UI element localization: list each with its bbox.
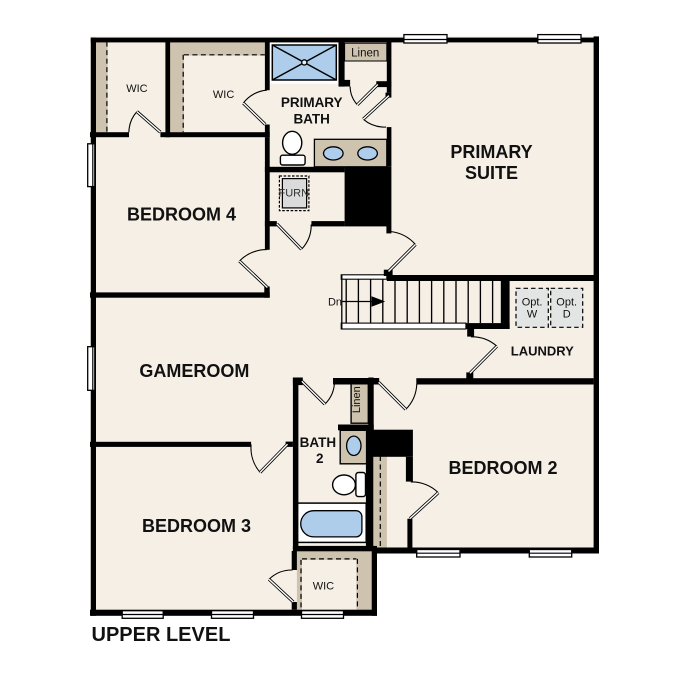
svg-text:Linen: Linen xyxy=(351,386,363,413)
svg-text:WIC: WIC xyxy=(126,83,147,95)
svg-text:LAUNDRY: LAUNDRY xyxy=(511,343,574,358)
svg-text:BEDROOM 2: BEDROOM 2 xyxy=(448,458,557,478)
svg-text:BEDROOM 4: BEDROOM 4 xyxy=(127,204,236,224)
svg-text:WIC: WIC xyxy=(213,89,234,101)
svg-text:Opt.: Opt. xyxy=(556,297,577,309)
svg-text:PRIMARY: PRIMARY xyxy=(281,95,343,110)
svg-text:UPPER LEVEL: UPPER LEVEL xyxy=(92,624,231,646)
svg-text:Opt.: Opt. xyxy=(522,297,543,309)
svg-text:PRIMARY: PRIMARY xyxy=(450,142,532,162)
svg-text:BATH: BATH xyxy=(300,435,337,450)
svg-text:WIC: WIC xyxy=(313,580,334,592)
svg-text:FURN: FURN xyxy=(279,187,310,199)
svg-text:SUITE: SUITE xyxy=(465,163,518,183)
svg-text:BEDROOM 3: BEDROOM 3 xyxy=(142,516,251,536)
svg-text:BATH: BATH xyxy=(293,111,330,126)
svg-text:W: W xyxy=(527,309,538,321)
svg-text:Dn: Dn xyxy=(328,296,342,308)
svg-text:GAMEROOM: GAMEROOM xyxy=(139,361,249,381)
svg-text:Linen: Linen xyxy=(351,47,379,59)
svg-text:D: D xyxy=(563,309,571,321)
svg-text:2: 2 xyxy=(316,451,324,466)
